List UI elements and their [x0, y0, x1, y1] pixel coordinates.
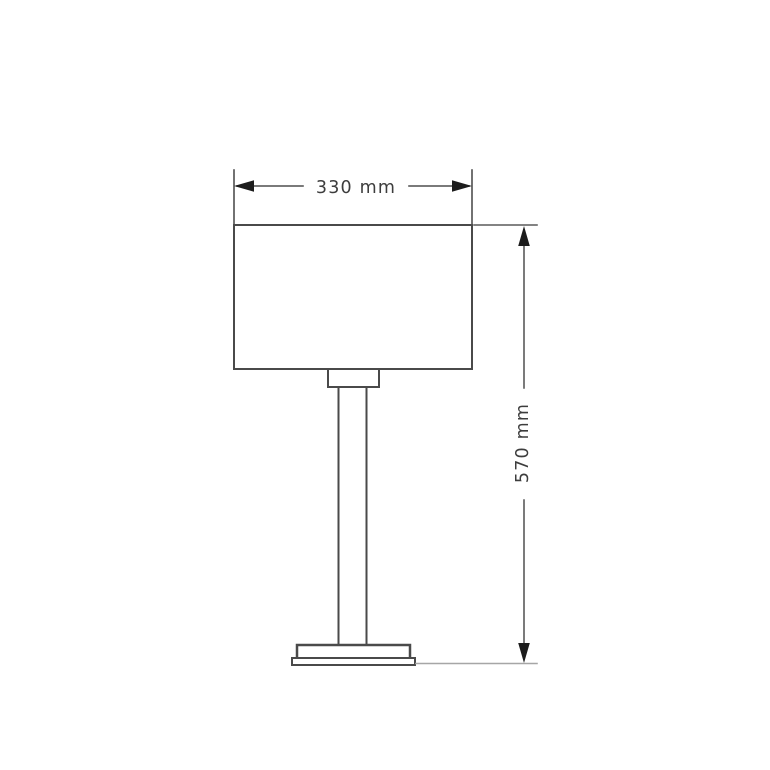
arrow-left-icon [234, 180, 254, 192]
labels-group: 330 mm 570 mm [316, 178, 533, 483]
socket-neck-outline [328, 369, 379, 387]
drawing-canvas: 330 mm 570 mm [0, 0, 770, 770]
lamp-outline-group [234, 225, 472, 665]
width-dimension-label: 330 mm [316, 178, 396, 198]
base-plate-outline [292, 658, 415, 665]
arrow-up-icon [518, 226, 530, 246]
lamp-technical-drawing: 330 mm 570 mm [0, 0, 770, 770]
arrowheads-group [234, 180, 530, 663]
lampshade-outline [234, 225, 472, 369]
arrow-right-icon [452, 180, 472, 192]
arrow-down-icon [518, 643, 530, 663]
height-dimension-label: 570 mm [513, 403, 533, 483]
base-top-outline [297, 645, 410, 659]
